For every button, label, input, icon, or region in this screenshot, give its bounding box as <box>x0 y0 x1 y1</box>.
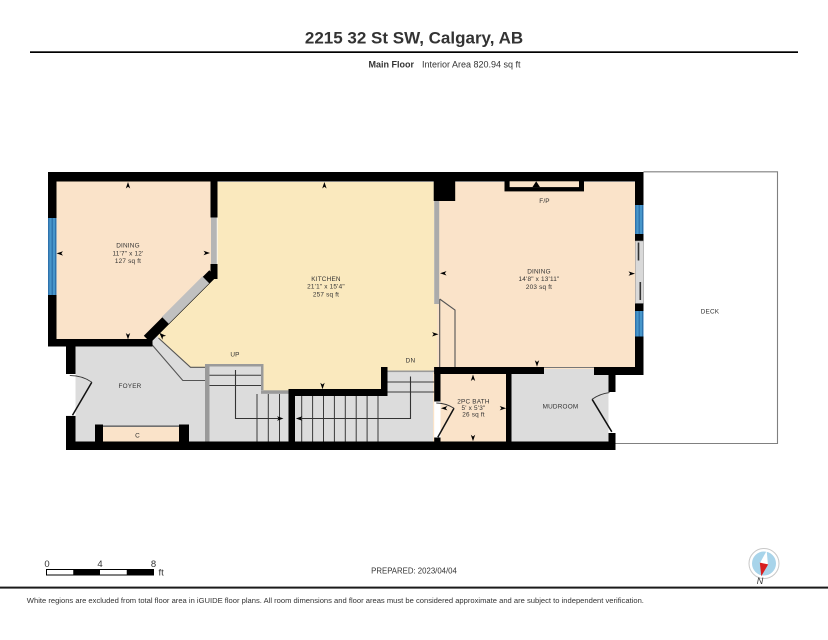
svg-text:C: C <box>135 433 140 440</box>
svg-text:26 sq ft: 26 sq ft <box>462 411 485 418</box>
svg-text:127 sq ft: 127 sq ft <box>115 258 141 265</box>
svg-text:PREPARED: 2023/04/04: PREPARED: 2023/04/04 <box>371 567 457 576</box>
svg-text:FOYER: FOYER <box>118 383 141 390</box>
svg-text:DINING: DINING <box>116 243 140 250</box>
svg-text:203 sq ft: 203 sq ft <box>526 284 552 291</box>
svg-text:DECK: DECK <box>701 309 720 316</box>
svg-text:11'7" x 12': 11'7" x 12' <box>113 250 144 257</box>
svg-text:0: 0 <box>44 559 49 570</box>
svg-text:MUDROOM: MUDROOM <box>543 404 579 411</box>
svg-text:White regions are excluded fro: White regions are excluded from total fl… <box>27 596 644 605</box>
svg-text:Main Floor: Main Floor <box>369 60 415 70</box>
svg-text:21'1" x 15'4": 21'1" x 15'4" <box>307 284 345 291</box>
svg-text:DINING: DINING <box>527 269 551 276</box>
svg-text:2215 32 St SW, Calgary, AB: 2215 32 St SW, Calgary, AB <box>305 29 523 48</box>
svg-text:Interior Area 820.94 sq ft: Interior Area 820.94 sq ft <box>422 60 521 70</box>
svg-text:UP: UP <box>230 352 239 359</box>
svg-text:N: N <box>757 576 764 586</box>
svg-text:14'8" x 13'11": 14'8" x 13'11" <box>519 276 560 283</box>
svg-text:DN: DN <box>406 358 416 365</box>
svg-text:ft: ft <box>159 568 165 579</box>
svg-text:8: 8 <box>151 559 156 570</box>
svg-text:257 sq ft: 257 sq ft <box>313 291 339 298</box>
svg-text:F/P: F/P <box>539 198 550 205</box>
svg-text:4: 4 <box>97 559 102 570</box>
svg-text:KITCHEN: KITCHEN <box>311 276 341 283</box>
